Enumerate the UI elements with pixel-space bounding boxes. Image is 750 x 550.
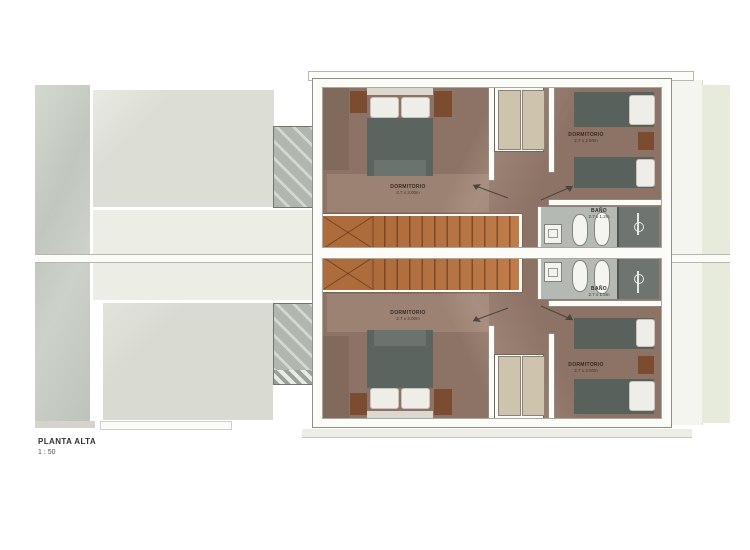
room-dims: 2.7 x 1.2m <box>569 214 629 220</box>
double-bed <box>367 330 433 418</box>
room-label-bathroom: BAÑO 2.7 x 1.2m <box>569 286 629 298</box>
nightstand <box>638 356 654 374</box>
wardrobe <box>498 356 521 416</box>
room-dims: 2.7 x 3.00m <box>363 316 453 322</box>
eave-band-bottom <box>302 429 692 438</box>
single-bed <box>574 379 654 414</box>
pillow <box>370 97 399 118</box>
party-fence-right <box>672 254 730 263</box>
single-bed <box>574 157 654 188</box>
shower-icon <box>637 271 639 293</box>
roof-edge-bar <box>35 421 95 428</box>
dwelling-unit-bottom: DORMITORIO 2.7 x 3.00m <box>323 259 661 418</box>
pillow <box>629 381 655 411</box>
dwelling-unit-top: DORMITORIO 2.7 x 3.00m <box>323 88 661 247</box>
wardrobe-niche <box>494 88 544 152</box>
bed-headboard <box>367 411 433 418</box>
floor-plan: DORMITORIO 2.7 x 3.00m <box>312 78 672 428</box>
staircase <box>323 214 522 247</box>
nightstand <box>350 393 367 415</box>
shower-icon <box>637 213 639 235</box>
wardrobe <box>498 90 521 150</box>
wardrobe <box>522 90 545 150</box>
bed-foot-fold <box>374 330 426 346</box>
room-label-bedroom-main: DORMITORIO 2.7 x 3.00m <box>363 184 453 196</box>
nightstand <box>434 91 452 117</box>
room-dims: 2.7 x 1.2m <box>569 292 629 298</box>
bed-foot-fold <box>374 160 426 176</box>
wardrobe-niche <box>494 354 544 418</box>
floor-shade <box>323 336 349 418</box>
wall <box>549 301 661 306</box>
stair-landing-lines <box>323 216 519 247</box>
single-bed <box>574 318 654 349</box>
room-dims: 2.7 x 2.50m <box>551 368 621 374</box>
nightstand <box>638 132 654 150</box>
single-bed <box>574 92 654 127</box>
sink <box>544 262 562 282</box>
page-title: PLANTA ALTA <box>38 437 96 446</box>
room-label-bedroom-second: DORMITORIO 2.7 x 2.50m <box>551 132 621 144</box>
wall <box>549 334 554 418</box>
pillow <box>629 95 655 125</box>
wall <box>549 88 554 172</box>
pillow <box>401 97 430 118</box>
room-label-bedroom-main: DORMITORIO 2.7 x 3.00m <box>363 310 453 322</box>
room-dims: 2.7 x 2.50m <box>551 138 621 144</box>
double-bed <box>367 88 433 176</box>
door-arrow-icon <box>565 186 573 192</box>
terrace-strip-right <box>672 80 703 425</box>
staircase <box>323 259 522 292</box>
pillow <box>636 319 655 347</box>
roof-panel-top-left <box>93 90 274 207</box>
nightstand <box>434 389 452 415</box>
floor-shade <box>323 88 349 170</box>
party-fence-left <box>35 254 312 263</box>
stair-landing-lines <box>323 259 519 290</box>
pillow <box>370 388 399 409</box>
roof-edge-band <box>100 421 232 430</box>
pillow <box>636 159 655 187</box>
room-label-bathroom: BAÑO 2.7 x 1.2m <box>569 208 629 220</box>
room-label-bedroom-second: DORMITORIO 2.7 x 2.50m <box>551 362 621 374</box>
floor-plan-sheet: DORMITORIO 2.7 x 3.00m <box>0 0 750 550</box>
bed-headboard <box>367 88 433 95</box>
wall <box>549 200 661 205</box>
sink <box>544 224 562 244</box>
pillow <box>401 388 430 409</box>
nightstand <box>350 91 367 113</box>
room-dims: 2.7 x 3.00m <box>363 190 453 196</box>
roof-panel-bottom-left <box>103 303 273 420</box>
wardrobe <box>522 356 545 416</box>
door-arrow-icon <box>565 314 573 320</box>
drawing-scale: 1 : 50 <box>38 449 56 456</box>
